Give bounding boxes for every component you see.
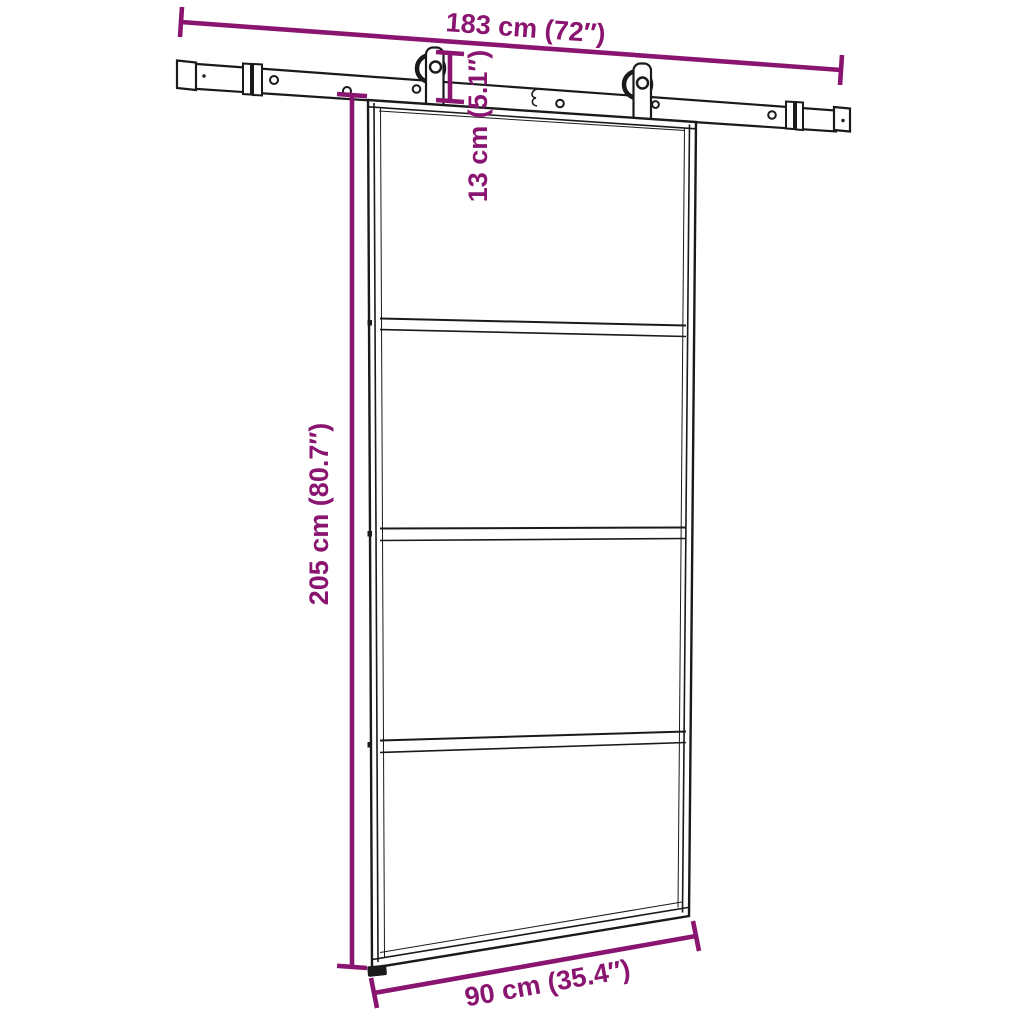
dimension-tick: [436, 52, 464, 54]
dimension-tick: [693, 921, 699, 951]
axle-bolt: [430, 62, 441, 73]
rail-stopper-right-b: [796, 102, 803, 130]
dimension-tick: [436, 100, 464, 102]
rail-stopper-right-a: [786, 102, 794, 130]
rail-bolt-hole: [768, 111, 776, 119]
glass-door: [367, 100, 696, 977]
sliding-door-diagram: 183 cm (72″) 13 cm (5.1″) 205 cm (80.7″)…: [0, 0, 1024, 1024]
rail-stopper-left-a: [243, 64, 251, 95]
strap-bolt: [652, 101, 659, 108]
rail-stopper-left-b: [253, 64, 262, 96]
dimension-tick: [180, 7, 182, 37]
dimension-tick: [840, 55, 842, 85]
divider-fixing-dot: [368, 531, 373, 537]
hanger-height-label: 13 cm (5.1″): [463, 50, 493, 203]
axle-bolt: [637, 78, 648, 89]
rail-cap-dot-left: [202, 74, 205, 77]
door-outline: [368, 100, 696, 968]
diagram-canvas: 183 cm (72″) 13 cm (5.1″) 205 cm (80.7″)…: [0, 0, 1024, 1024]
rail-bolt-hole: [270, 76, 278, 84]
divider-fixing-dot: [368, 320, 373, 326]
dimension-tick: [337, 94, 367, 96]
divider-fixing-dot: [368, 742, 373, 748]
rail-bolt-hole: [556, 100, 564, 108]
rail-cap-dot-right: [841, 119, 844, 122]
door-height-label: 205 cm (80.7″): [304, 423, 334, 606]
floor-guide-foot: [367, 965, 387, 977]
rail-end-cap-left: [177, 61, 196, 91]
dimension-door-height: 205 cm (80.7″): [304, 94, 367, 968]
strap-bolt: [413, 85, 421, 93]
dimension-tick: [371, 978, 377, 1008]
dimension-tick: [337, 966, 367, 968]
hanger-strap: [634, 64, 652, 124]
